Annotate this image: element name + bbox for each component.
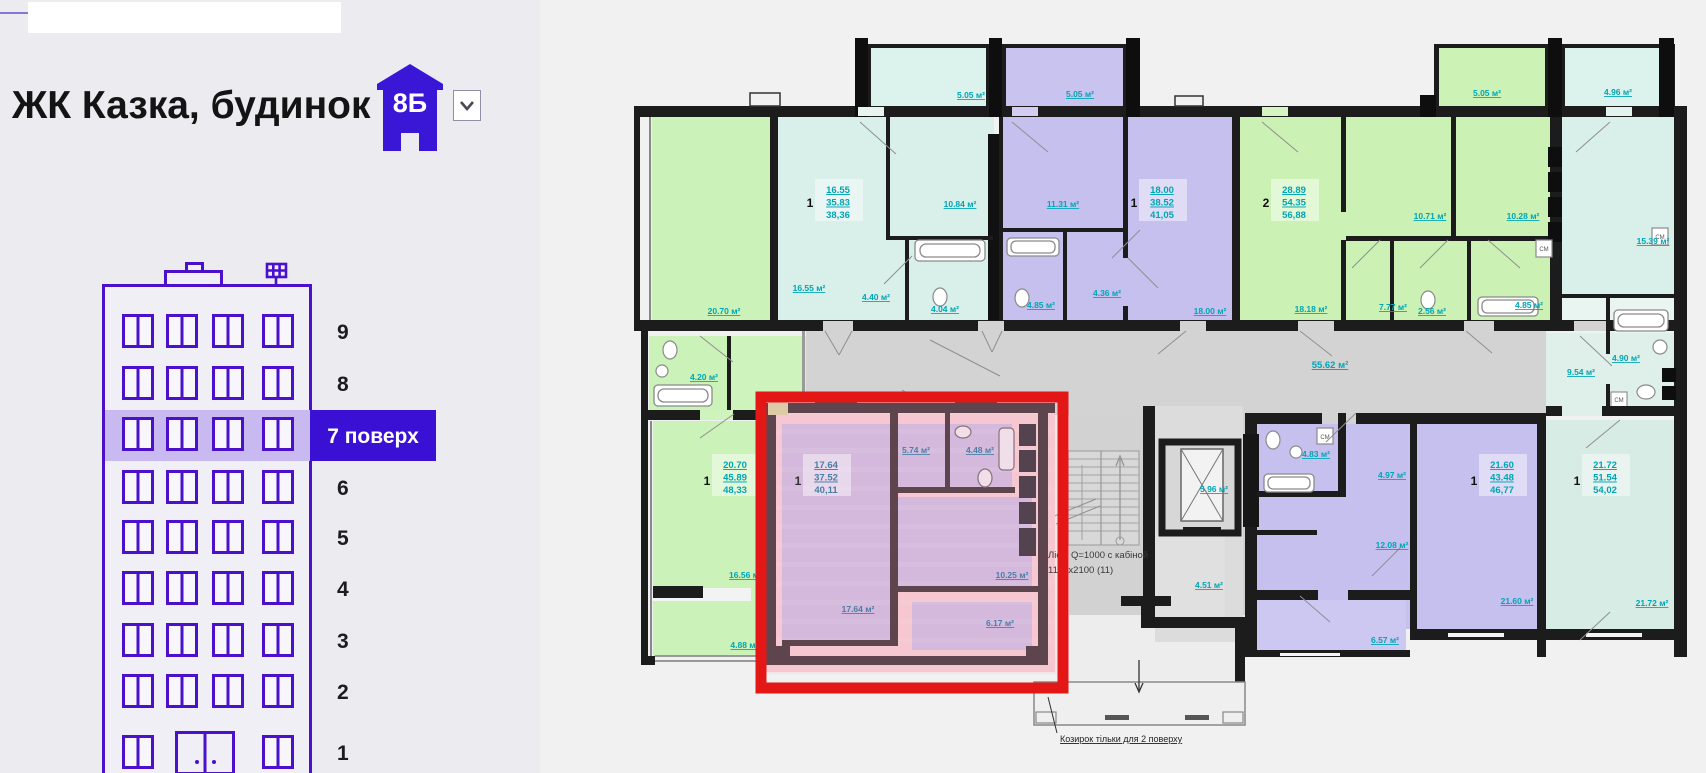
svg-text:4.36 м²: 4.36 м²	[1093, 288, 1121, 298]
svg-text:2.56 м²: 2.56 м²	[1418, 306, 1446, 316]
svg-text:16.55: 16.55	[826, 185, 850, 196]
svg-text:4.96 м²: 4.96 м²	[1604, 87, 1632, 97]
svg-text:1: 1	[807, 196, 814, 210]
svg-text:10.25 м²: 10.25 м²	[996, 570, 1029, 580]
svg-text:1: 1	[1131, 196, 1138, 210]
svg-text:4.04 м²: 4.04 м²	[931, 304, 959, 314]
svg-text:38.52: 38.52	[1150, 198, 1174, 209]
svg-text:20.70: 20.70	[723, 460, 747, 471]
svg-text:1: 1	[795, 474, 802, 488]
svg-text:3: 3	[337, 630, 349, 653]
svg-text:17.64 м²: 17.64 м²	[842, 604, 875, 614]
svg-text:17.64: 17.64	[814, 460, 838, 471]
svg-text:40,11: 40,11	[814, 485, 838, 496]
svg-text:1: 1	[704, 474, 711, 488]
svg-text:18.00 м²: 18.00 м²	[1194, 306, 1227, 316]
svg-text:55.62 м²: 55.62 м²	[1312, 360, 1349, 371]
svg-text:10.71 м²: 10.71 м²	[1414, 211, 1447, 221]
svg-text:8Б: 8Б	[393, 88, 427, 118]
svg-text:Козирок тільки для 2 поверху: Козирок тільки для 2 поверху	[1060, 734, 1183, 744]
svg-text:6.17 м²: 6.17 м²	[986, 618, 1014, 628]
svg-text:16.56 м: 16.56 м	[729, 570, 759, 580]
svg-text:4.48 м²: 4.48 м²	[966, 445, 994, 455]
svg-text:43.48: 43.48	[1490, 473, 1514, 484]
svg-text:21.60: 21.60	[1490, 460, 1514, 471]
svg-text:10.28 м²: 10.28 м²	[1507, 211, 1540, 221]
svg-text:21.60 м²: 21.60 м²	[1501, 596, 1534, 606]
svg-text:38,36: 38,36	[826, 210, 850, 221]
svg-text:54.35: 54.35	[1282, 198, 1306, 209]
svg-text:21.72: 21.72	[1593, 460, 1617, 471]
svg-text:4.20 м²: 4.20 м²	[690, 372, 718, 382]
svg-text:56,88: 56,88	[1282, 210, 1306, 221]
svg-text:5.74 м²: 5.74 м²	[902, 445, 930, 455]
svg-text:СМ: СМ	[1614, 398, 1623, 404]
svg-text:5.05 м²: 5.05 м²	[1066, 89, 1094, 99]
svg-text:10.84 м²: 10.84 м²	[944, 199, 977, 209]
svg-text:4.97 м²: 4.97 м²	[1378, 470, 1406, 480]
svg-text:28.89: 28.89	[1282, 185, 1306, 196]
svg-text:9.54 м²: 9.54 м²	[1567, 367, 1595, 377]
svg-text:41,05: 41,05	[1150, 210, 1174, 221]
svg-text:4.85 м²: 4.85 м²	[1027, 300, 1055, 310]
svg-text:18.18 м²: 18.18 м²	[1295, 304, 1328, 314]
svg-text:4.85 м²: 4.85 м²	[1515, 300, 1543, 310]
svg-text:54,02: 54,02	[1593, 485, 1617, 496]
svg-text:46,77: 46,77	[1490, 485, 1514, 496]
svg-text:18.00: 18.00	[1150, 185, 1174, 196]
svg-text:37.52: 37.52	[814, 473, 838, 484]
svg-text:2: 2	[1263, 196, 1270, 210]
svg-text:4.40 м²: 4.40 м²	[862, 292, 890, 302]
svg-text:СМ: СМ	[1539, 247, 1548, 253]
svg-text:7.77 м²: 7.77 м²	[1379, 302, 1407, 312]
svg-text:51.54: 51.54	[1593, 473, 1617, 484]
svg-text:4.51 м²: 4.51 м²	[1195, 580, 1223, 590]
svg-text:5.05 м²: 5.05 м²	[957, 90, 985, 100]
svg-text:20.70 м²: 20.70 м²	[708, 306, 741, 316]
svg-text:4.83 м²: 4.83 м²	[1302, 449, 1330, 459]
svg-text:6.57 м²: 6.57 м²	[1371, 635, 1399, 645]
svg-text:1: 1	[1471, 474, 1478, 488]
svg-text:35.83: 35.83	[826, 198, 850, 209]
svg-text:12.08 м²: 12.08 м²	[1376, 540, 1409, 550]
svg-text:21.72 м²: 21.72 м²	[1636, 598, 1669, 608]
svg-text:1: 1	[337, 742, 349, 765]
svg-text:15.39 м²: 15.39 м²	[1637, 236, 1670, 246]
svg-text:4: 4	[337, 578, 349, 601]
svg-text:1: 1	[1574, 474, 1581, 488]
svg-text:5.96 м²: 5.96 м²	[1200, 484, 1228, 494]
svg-text:11.31 м²: 11.31 м²	[1047, 199, 1079, 209]
svg-text:8: 8	[337, 373, 349, 396]
svg-text:4.90 м²: 4.90 м²	[1612, 353, 1640, 363]
svg-text:7 поверх: 7 поверх	[327, 425, 419, 448]
svg-text:6: 6	[337, 477, 349, 500]
svg-text:4.88 м: 4.88 м	[730, 640, 755, 650]
svg-text:2: 2	[337, 681, 349, 704]
svg-text:45.89: 45.89	[723, 473, 747, 484]
svg-text:16.55 м²: 16.55 м²	[793, 283, 826, 293]
svg-text:5.05 м²: 5.05 м²	[1473, 88, 1501, 98]
svg-text:9: 9	[337, 321, 349, 344]
svg-text:5: 5	[337, 527, 349, 550]
svg-text:48,33: 48,33	[723, 485, 747, 496]
